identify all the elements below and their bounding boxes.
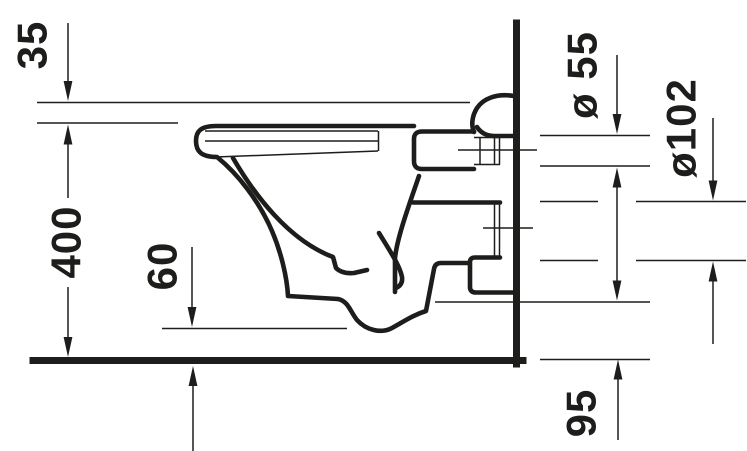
dim-400-label: 400	[43, 205, 90, 278]
dim-55-label: ø 55	[559, 31, 606, 119]
dim-35: 35	[9, 21, 73, 101]
dim-60-arrow-down	[188, 307, 197, 327]
wall-floor	[33, 23, 523, 364]
seat-lid-lines	[205, 131, 379, 157]
dim-60-arrow-up-floor	[189, 366, 198, 386]
seat-line-bottom	[216, 151, 378, 157]
dim-55-arrow-down	[613, 114, 622, 134]
dim-55-arrow-up	[613, 168, 622, 188]
bowl-rear-inner-curve	[395, 176, 419, 292]
dim-102: ø102	[658, 78, 718, 344]
dim-400-arrow-down	[64, 337, 73, 357]
dim-400-arrow-up	[64, 125, 73, 145]
dim-102-arrow-up	[709, 262, 718, 282]
dim-95-arrow-up	[614, 360, 623, 380]
toilet-technical-drawing: 35 400 60 ø 55 ø102 95	[0, 0, 747, 451]
extension-lines	[37, 103, 746, 360]
dim-35-arrow-down	[64, 81, 73, 101]
drawing-canvas: 35 400 60 ø 55 ø102 95	[0, 0, 747, 451]
dim-95: 95	[558, 360, 623, 441]
dim-102-label: ø102	[658, 78, 705, 178]
dim-60: 60	[139, 242, 198, 451]
bowl-inner-contour	[233, 158, 367, 273]
dim-60-label: 60	[139, 242, 186, 291]
flush-bend-lower	[477, 127, 514, 136]
dim-95-label: 95	[558, 389, 605, 438]
dim-400: 400	[43, 125, 90, 358]
dim-95-arrow-down	[613, 281, 622, 301]
rear-skirt-outline	[470, 258, 516, 293]
dim-102-arrow-down	[709, 181, 718, 201]
pipe-stub-lines	[474, 138, 500, 258]
dim-35-label: 35	[9, 21, 56, 70]
